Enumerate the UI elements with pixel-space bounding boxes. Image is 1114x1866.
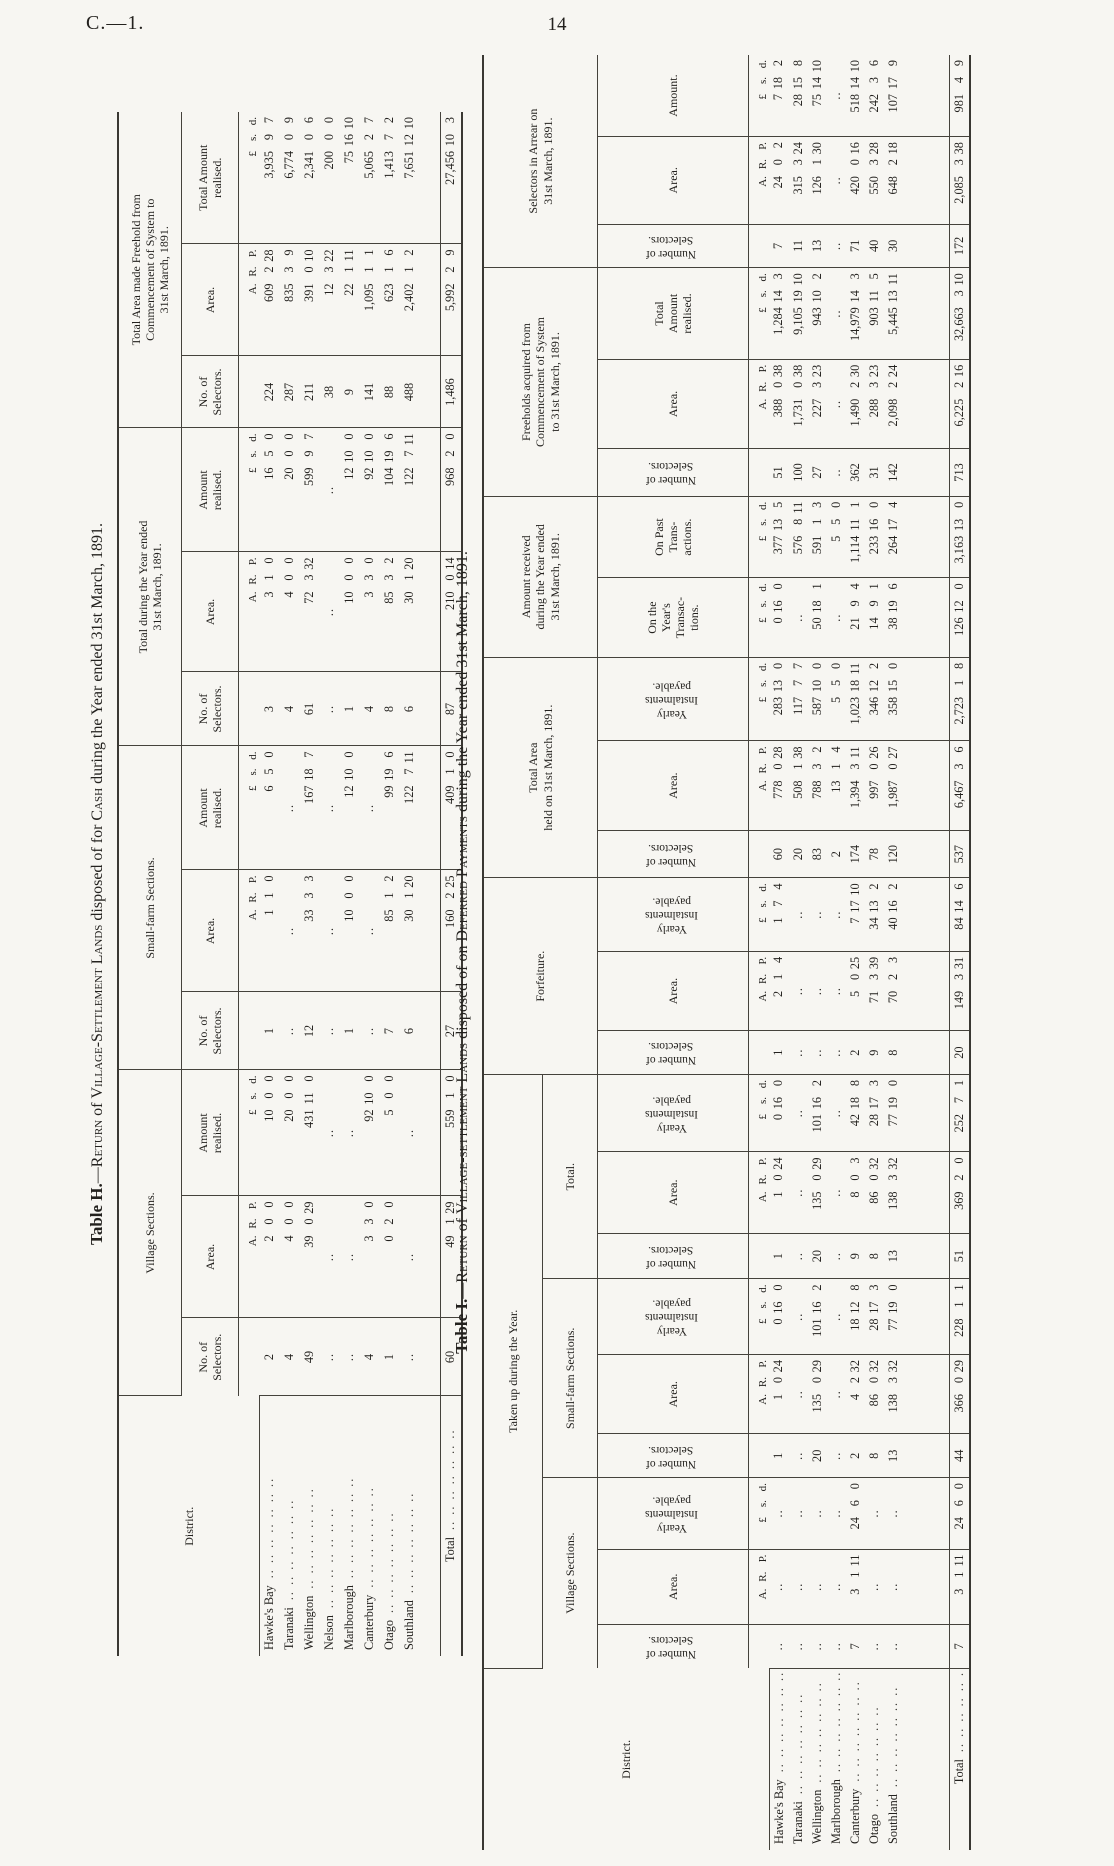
value-parts: 40162: [886, 880, 901, 948]
value-part: 3: [362, 592, 377, 670]
leader-dots: .. .. .. .. .. .. ..: [791, 1671, 806, 1802]
value-part: 29: [302, 1202, 317, 1219]
value-cell: 287: [280, 356, 300, 428]
value-cell: 167187: [300, 746, 320, 870]
value-parts: 28173: [867, 1281, 882, 1352]
units-parts: £s.d.: [757, 660, 769, 739]
value-part: 391: [302, 284, 317, 354]
value-part: 5: [382, 1110, 397, 1194]
value-part: 2: [810, 273, 825, 290]
value-part: 6,467: [952, 780, 967, 827]
value-part: 38: [886, 617, 901, 654]
value-cell: 283130: [769, 657, 789, 741]
value-parts: 903115: [867, 270, 882, 357]
col-header: Area.: [598, 741, 749, 830]
value-part: 38: [771, 365, 786, 382]
value-part: 3: [302, 893, 317, 910]
value-part: 11: [952, 1555, 967, 1572]
col-header: Total Amount realised.: [182, 112, 239, 244]
value-part: 0: [262, 1093, 277, 1110]
district-cell: Canterbury.. .. .. .. .. .. ..: [846, 1668, 865, 1850]
value-part: 4: [282, 592, 297, 670]
district-name: Taranaki: [791, 1801, 806, 1848]
value-part: 24: [771, 176, 786, 221]
value-part: 15: [791, 77, 806, 94]
value-parts: 500: [382, 1073, 397, 1194]
value-part: 16: [771, 1301, 786, 1318]
vertical-col-header: Yearly Instalments payable.: [645, 894, 698, 935]
value-cell: 713: [949, 449, 970, 497]
value-part: 0: [848, 159, 863, 176]
district-cell: Marlborough.. .. .. .. .. .. ..: [340, 1396, 360, 1656]
value-part: 32: [302, 558, 317, 575]
value-part: 24: [771, 1360, 786, 1377]
value-cell: 61: [300, 672, 320, 746]
value-cell: 22811: [949, 1279, 970, 1355]
value-cell: ..: [400, 1318, 420, 1396]
col-header: Number of Selectors.: [598, 1233, 749, 1279]
value-cell: 431110: [300, 1070, 320, 1196]
value-cell: 5025: [846, 951, 865, 1030]
value-cell: 38196: [884, 578, 903, 657]
value-parts: 214: [771, 954, 786, 1028]
value-cell: ..: [789, 1434, 808, 1478]
value-parts: 122711: [402, 749, 417, 868]
value-part: 12: [848, 1301, 863, 1318]
value-part: 70: [886, 991, 901, 1028]
value-part: 3: [848, 273, 863, 290]
value-part: 34: [867, 917, 882, 948]
value-part: 3: [952, 1589, 967, 1622]
value-part: 38: [791, 365, 806, 382]
units-part: £: [247, 468, 259, 550]
value-part: 1: [402, 893, 417, 910]
value-part: 10: [848, 60, 863, 77]
value-part: 0: [302, 1076, 317, 1093]
units-part: A.: [757, 176, 769, 221]
leader-dots: .. .. .. .. .. .. ..: [829, 1671, 844, 1779]
col-header: Area.: [182, 552, 239, 672]
leader-dots: .. .. .. .. .. .. ..: [867, 1671, 882, 1814]
value-part: 3: [952, 290, 967, 307]
units-cell: A.R.P.: [749, 359, 770, 448]
value-cell: 2460: [846, 1478, 865, 1550]
value-part: 508: [791, 780, 806, 827]
table-h-landscape: Table H.—Return of Village-Settlement La…: [85, 112, 470, 1656]
value-cell: 6,225216: [949, 359, 970, 448]
value-part: 17: [848, 900, 863, 917]
value-parts: 803: [848, 1154, 863, 1230]
value-cell: 508138: [789, 741, 808, 830]
value-cell: 310: [259, 552, 280, 672]
value-part: 7: [952, 1097, 967, 1114]
units-cell: A.R.P.: [239, 870, 260, 992]
value-cell: 5,06527: [360, 112, 380, 244]
units-cell: A.R.P.: [239, 1196, 260, 1318]
value-part: 21: [848, 617, 863, 654]
units-part: R.: [247, 893, 259, 910]
value-cell: 020: [380, 1196, 400, 1318]
value-cell: 122711: [400, 746, 420, 870]
value-cell: 4: [280, 1318, 300, 1396]
value-parts: 0160: [771, 1077, 786, 1150]
value-part: 369: [952, 1191, 967, 1230]
value-part: 623: [382, 284, 397, 354]
value-cell: ..: [827, 1031, 846, 1075]
units-parts: £s.d.: [757, 270, 769, 357]
district-name: Marlborough: [829, 1779, 844, 1848]
value-part: 2: [771, 142, 786, 159]
value-part: 7: [771, 94, 786, 134]
value-part: 18: [848, 1097, 863, 1114]
value-part: 228: [952, 1318, 967, 1352]
table-row: Southland.. .. .. .. .. .. ........63012…: [400, 112, 420, 1656]
value-cell: 27: [808, 449, 827, 497]
value-cell: ..: [360, 992, 380, 1070]
units-cell: A.R.P.: [239, 552, 260, 672]
value-part: 1: [402, 575, 417, 592]
value-cell: 122711: [400, 428, 420, 552]
subgroup-header-village: Village Sections.: [543, 1478, 598, 1669]
value-part: 1: [867, 583, 882, 600]
value-part: 0: [282, 451, 297, 468]
value-part: 3: [848, 1157, 863, 1174]
units-part: R.: [757, 1572, 769, 1589]
value-cell: 0160: [769, 1074, 789, 1152]
units-cell: £s.d.: [749, 55, 770, 137]
table-row: Taranaki.. .. .. .. .. .. ..............…: [789, 55, 808, 1850]
value-cell: 84146: [949, 878, 970, 951]
units-part: A.: [247, 284, 259, 354]
value-part: 5,445: [886, 307, 901, 357]
value-part: 7: [791, 680, 806, 697]
value-part: 3: [382, 575, 397, 592]
value-part: 0: [810, 1377, 825, 1394]
value-part: 10: [342, 910, 357, 990]
value-cell: ..: [827, 1152, 846, 1233]
value-cell: 803: [846, 1152, 865, 1233]
value-part: 14: [771, 290, 786, 307]
value-part: 0: [322, 117, 337, 134]
vertical-col-header: Number of Selectors.: [646, 232, 696, 260]
value-parts: 1,0231811: [848, 660, 863, 739]
leader-dots: .. .. .. .. .. .. ..: [772, 1671, 787, 1780]
value-part: 32: [848, 1360, 863, 1377]
value-cell: 12100: [340, 746, 360, 870]
value-part: 0: [771, 1114, 786, 1150]
value-part: 0: [262, 434, 277, 451]
district-name: Hawke's Bay: [772, 1779, 787, 1848]
value-parts: 1650: [262, 431, 277, 550]
value-parts: 92100: [362, 431, 377, 550]
value-parts: 12100: [342, 749, 357, 868]
value-cell: 4: [360, 672, 380, 746]
value-cell: ..: [789, 1152, 808, 1233]
value-part: 3: [867, 382, 882, 399]
units-parts: £s.d.: [757, 499, 769, 576]
district-name: Nelson: [322, 1615, 337, 1654]
value-cell: ..: [320, 870, 340, 992]
subgroup-header-smallfarm: Small-farm Sections.: [543, 1279, 598, 1478]
value-part: 3: [362, 1219, 377, 1236]
value-parts: 020: [382, 1199, 397, 1316]
value-part: 0: [262, 1076, 277, 1093]
value-part: 4: [829, 746, 844, 763]
value-cell: 100: [789, 449, 808, 497]
value-cell: 9,1051910: [789, 268, 808, 360]
value-part: 2: [771, 991, 786, 1028]
units-part: d.: [757, 1080, 769, 1097]
value-cell: ..: [827, 951, 846, 1030]
district-header: District.: [118, 1396, 259, 1656]
value-part: 2: [886, 382, 901, 399]
value-cell: 62316: [380, 244, 400, 356]
value-parts: 30120: [402, 555, 417, 670]
value-part: 24: [886, 365, 901, 382]
value-cell: 1,41372: [380, 112, 400, 244]
units-cell: £s.d.: [749, 1074, 770, 1152]
vertical-col-header: Yearly Instalments payable.: [645, 1493, 698, 1534]
value-cell: 2000: [280, 428, 300, 552]
units-parts: A.R.P.: [757, 1552, 769, 1622]
value-part: 7: [302, 434, 317, 451]
value-parts: 174: [771, 880, 786, 948]
value-part: 0: [867, 1377, 882, 1394]
value-part: 0: [771, 1284, 786, 1301]
col-header: Number of Selectors.: [598, 830, 749, 878]
value-part: 28: [867, 142, 882, 159]
value-parts: 2460: [848, 1480, 863, 1547]
value-cell: 78: [865, 830, 884, 878]
value-part: 13: [867, 900, 882, 917]
value-cell: ..: [827, 449, 846, 497]
value-part: 85: [382, 910, 397, 990]
value-parts: 2,098224: [886, 362, 901, 446]
value-part: 778: [771, 780, 786, 827]
value-part: 86: [867, 1191, 882, 1230]
district-flex: Otago.. .. .. .. .. .. ..: [382, 1399, 397, 1655]
value-parts: 550328: [867, 139, 882, 221]
value-parts: 6,225216: [952, 362, 967, 446]
value-part: 0: [867, 763, 882, 780]
value-parts: 101162: [810, 1077, 825, 1150]
value-parts: 1,731038: [791, 362, 806, 446]
value-cell: 28158: [789, 55, 808, 137]
district-cell: Wellington.. .. .. .. .. .. ..: [808, 1668, 827, 1850]
value-part: 7: [848, 917, 863, 948]
value-part: 9: [952, 60, 967, 77]
value-part: 12: [402, 134, 417, 151]
value-part: 24: [771, 1157, 786, 1174]
value-part: 8: [791, 60, 806, 77]
value-part: 10: [362, 1093, 377, 1110]
value-cell: 77190: [884, 1074, 903, 1152]
value-cell: 174: [769, 878, 789, 951]
value-cell: ..: [827, 1549, 846, 1624]
value-cell: ..: [280, 992, 300, 1070]
value-part: 18: [848, 1318, 863, 1352]
value-cell: 550: [827, 496, 846, 578]
value-parts: 126120: [952, 580, 967, 654]
value-cell: 264174: [884, 496, 903, 578]
value-cell: ..: [827, 1355, 846, 1434]
value-part: 39: [867, 957, 882, 974]
value-part: 18: [848, 680, 863, 697]
value-cell: 751610: [340, 112, 360, 244]
value-part: 0: [302, 1219, 317, 1236]
units-part: s.: [247, 769, 259, 786]
value-part: 0: [342, 434, 357, 451]
value-part: 648: [886, 176, 901, 221]
value-parts: 104196: [382, 431, 397, 550]
value-part: 1: [402, 267, 417, 284]
units-cell: £s.d.: [749, 1478, 770, 1550]
units-part: £: [247, 786, 259, 868]
value-part: 1: [262, 893, 277, 910]
value-part: 122: [402, 468, 417, 550]
leader-dots: .. .. .. .. .. .. ..: [402, 1399, 417, 1601]
value-part: 943: [810, 307, 825, 357]
vertical-col-header: Number of Selectors.: [646, 1633, 696, 1661]
value-part: 9: [848, 600, 863, 617]
value-part: 788: [810, 780, 825, 827]
page-number: 14: [0, 14, 1114, 36]
value-part: 10: [302, 250, 317, 267]
district-flex: Marlborough.. .. .. .. .. .. ..: [829, 1671, 844, 1848]
value-cell: 1: [340, 992, 360, 1070]
value-part: 288: [867, 399, 882, 446]
value-part: 10: [952, 273, 967, 290]
units-part: R.: [757, 974, 769, 991]
vertical-col-header: Yearly Instalments payable.: [645, 1093, 698, 1134]
value-cell: 648218: [884, 137, 903, 224]
value-parts: 77190: [886, 1281, 901, 1352]
value-part: 135: [810, 1394, 825, 1431]
value-cell: 211: [300, 356, 320, 428]
value-cell: 943102: [808, 268, 827, 360]
units-part: £: [757, 1114, 769, 1150]
units-part: s.: [757, 77, 769, 94]
value-part: 50: [810, 617, 825, 654]
value-part: 0: [342, 558, 357, 575]
value-part: 1: [362, 267, 377, 284]
units-cell: A.R.P.: [749, 741, 770, 830]
col-header: No. of Selectors.: [182, 1318, 239, 1396]
value-part: 11: [867, 290, 882, 307]
value-cell: 537: [949, 830, 970, 878]
value-part: 0: [952, 1377, 967, 1394]
value-part: 0: [771, 663, 786, 680]
group-header-total-year: Total during the Year ended 31st March, …: [118, 428, 182, 746]
leader-dots: .. .. .. .. .. .. ..: [322, 1399, 337, 1616]
units-cell: [749, 830, 770, 878]
value-parts: 1491: [867, 580, 882, 654]
value-part: 366: [952, 1394, 967, 1431]
value-cell: 71710: [846, 878, 865, 951]
col-header: Yearly Instalments payable.: [598, 657, 749, 741]
value-part: 0: [382, 1236, 397, 1316]
units-part: R.: [757, 1377, 769, 1394]
value-part: 16: [771, 1097, 786, 1114]
value-part: 8: [848, 1284, 863, 1301]
value-cell: 28173: [865, 1279, 884, 1355]
value-part: 0: [952, 583, 967, 600]
district-name: Total: [952, 1759, 967, 1848]
value-part: 0: [302, 267, 317, 284]
col-header: Amount realised.: [182, 1070, 239, 1196]
value-part: 5: [829, 697, 844, 739]
district-cell: Hawke's Bay.. .. .. .. .. .. ..: [769, 1668, 789, 1850]
leader-dots: .. .. .. .. .. .. ..: [362, 1399, 377, 1595]
value-part: 10: [342, 117, 357, 134]
value-cell: 83: [808, 830, 827, 878]
value-cell: 8: [884, 1031, 903, 1075]
value-cell: 400: [280, 552, 300, 672]
value-part: 7: [402, 451, 417, 468]
units-part: d.: [757, 273, 769, 290]
value-part: 10: [791, 273, 806, 290]
value-part: 388: [771, 399, 786, 446]
value-parts: 400: [282, 555, 297, 670]
value-cell: 288323: [865, 359, 884, 448]
value-cell: 9: [846, 1233, 865, 1279]
value-parts: 2402: [771, 139, 786, 221]
value-cell: 1650: [259, 428, 280, 552]
units-cell: [749, 1233, 770, 1279]
value-part: 39: [302, 1236, 317, 1316]
value-cell: 400: [280, 1196, 300, 1318]
value-parts: 0160: [771, 580, 786, 654]
col-header: Area.: [182, 1196, 239, 1318]
value-cell: 362: [846, 449, 865, 497]
value-part: 0: [342, 752, 357, 769]
value-part: 14: [952, 900, 967, 917]
vertical-col-header: Number of Selectors.: [646, 1039, 696, 1067]
value-cell: 101162: [808, 1279, 827, 1355]
value-part: 0: [886, 763, 901, 780]
value-cell: 7,6511210: [400, 112, 420, 244]
value-cell: 388038: [769, 359, 789, 448]
value-cell: 18128: [846, 1279, 865, 1355]
leader-dots: .. .. .. .. .. .. ..: [848, 1671, 863, 1789]
value-parts: 1,987027: [886, 743, 901, 827]
district-name: Canterbury: [848, 1789, 863, 1848]
value-part: 6,774: [282, 151, 297, 242]
district-flex: Southland.. .. .. .. .. .. ..: [402, 1399, 417, 1655]
value-part: 17: [867, 1097, 882, 1114]
value-part: 3: [952, 763, 967, 780]
subgroup-header-total: Total.: [543, 1074, 598, 1279]
value-part: 18: [886, 142, 901, 159]
value-parts: 107179: [886, 57, 901, 134]
value-cell: 86032: [865, 1355, 884, 1434]
units-cell: A.R.P.: [749, 137, 770, 224]
units-part: d.: [247, 117, 259, 134]
value-part: 0: [848, 974, 863, 991]
value-part: 23: [810, 365, 825, 382]
value-part: 71: [867, 991, 882, 1028]
value-parts: 3333: [302, 873, 317, 990]
value-part: 0: [886, 663, 901, 680]
spacer-cell: [903, 1478, 950, 1550]
value-cell: ..: [884, 1478, 903, 1550]
leader-dots: .. .. .. .. .. .. ..: [302, 1399, 317, 1596]
value-parts: 1,490230: [848, 362, 863, 446]
value-parts: 138332: [886, 1154, 901, 1230]
value-cell: 72332: [300, 552, 320, 672]
value-parts: 71710: [848, 880, 863, 948]
value-part: 14: [848, 290, 863, 307]
